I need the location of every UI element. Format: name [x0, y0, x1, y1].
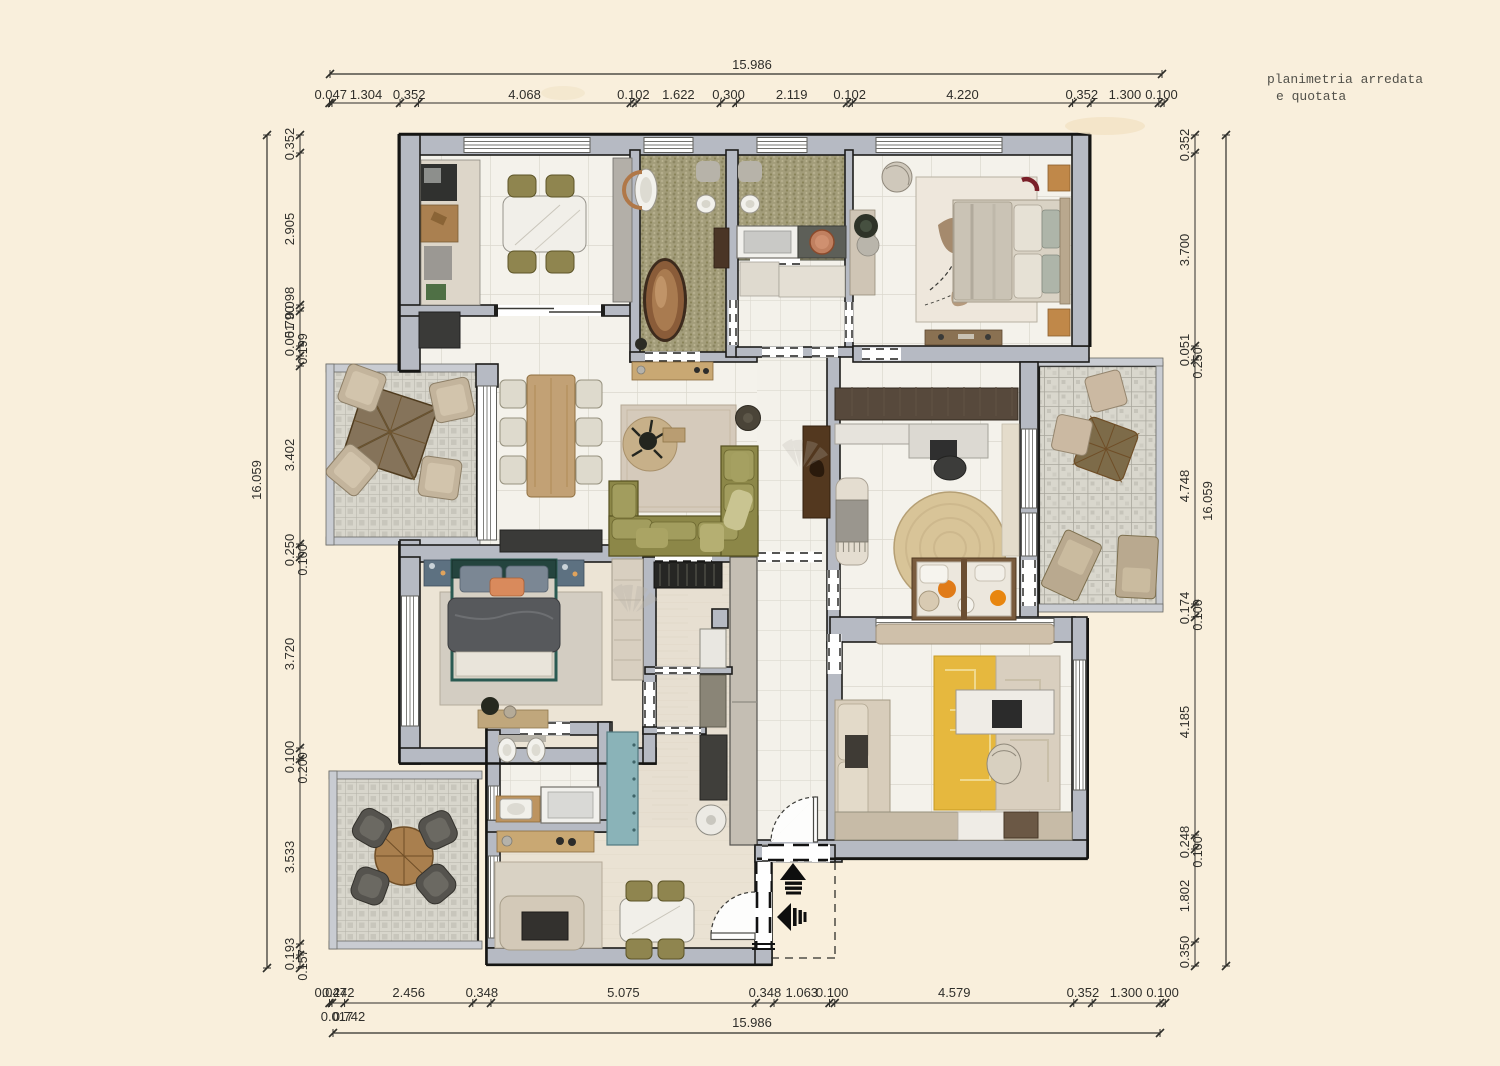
svg-text:0.157: 0.157	[296, 949, 310, 980]
svg-text:planimetria arredata: planimetria arredata	[1267, 72, 1423, 87]
svg-text:1.304: 1.304	[350, 87, 383, 102]
svg-text:0.352: 0.352	[1177, 129, 1192, 162]
svg-text:0.250: 0.250	[1191, 347, 1205, 378]
svg-text:0.102: 0.102	[617, 87, 650, 102]
svg-text:0.100: 0.100	[816, 985, 849, 1000]
svg-text:3.402: 3.402	[282, 439, 297, 472]
svg-text:5.075: 5.075	[607, 985, 640, 1000]
svg-text:1.300: 1.300	[1109, 87, 1142, 102]
svg-text:4.748: 4.748	[1177, 470, 1192, 503]
svg-text:0.100: 0.100	[1146, 985, 1179, 1000]
svg-text:3.720: 3.720	[282, 638, 297, 671]
svg-text:0.352: 0.352	[282, 128, 297, 161]
svg-text:2.905: 2.905	[282, 213, 297, 246]
svg-text:0.352: 0.352	[1066, 87, 1099, 102]
svg-text:16.059: 16.059	[1200, 481, 1215, 521]
svg-text:0.200: 0.200	[296, 752, 310, 783]
svg-text:4.220: 4.220	[946, 87, 979, 102]
svg-text:1.063: 1.063	[786, 985, 819, 1000]
svg-text:1.622: 1.622	[662, 87, 695, 102]
svg-text:0.742: 0.742	[333, 1009, 366, 1024]
svg-text:16.059: 16.059	[249, 460, 264, 500]
svg-text:2.119: 2.119	[776, 87, 808, 102]
svg-text:0.348: 0.348	[466, 985, 499, 1000]
svg-text:0.047: 0.047	[314, 87, 347, 102]
svg-text:0.199: 0.199	[296, 333, 310, 364]
svg-text:0.300: 0.300	[712, 87, 745, 102]
svg-text:0.352: 0.352	[1067, 985, 1100, 1000]
svg-text:0.100: 0.100	[1191, 836, 1205, 867]
svg-text:0.102: 0.102	[833, 87, 866, 102]
svg-text:0.193: 0.193	[282, 938, 297, 971]
svg-text:0.174: 0.174	[1177, 592, 1192, 625]
svg-text:3.533: 3.533	[282, 841, 297, 874]
svg-text:0.352: 0.352	[393, 87, 426, 102]
svg-text:0.100: 0.100	[296, 544, 310, 575]
svg-text:1.300: 1.300	[1110, 985, 1143, 1000]
svg-text:1.802: 1.802	[1177, 880, 1192, 913]
svg-text:0.100: 0.100	[1191, 599, 1205, 630]
svg-text:0.350: 0.350	[1177, 936, 1192, 969]
svg-text:0.051: 0.051	[1177, 334, 1192, 367]
svg-text:2.456: 2.456	[392, 985, 425, 1000]
svg-text:0.051: 0.051	[282, 324, 297, 357]
svg-text:0.248: 0.248	[1177, 826, 1192, 859]
svg-text:0.100: 0.100	[282, 741, 297, 774]
svg-text:15.986: 15.986	[732, 57, 772, 72]
svg-text:0.250: 0.250	[282, 534, 297, 567]
svg-text:15.986: 15.986	[732, 1015, 772, 1030]
svg-text:0.100: 0.100	[1145, 87, 1178, 102]
svg-text:0.242: 0.242	[322, 985, 355, 1000]
svg-text:0.348: 0.348	[749, 985, 782, 1000]
svg-text:e quotata: e quotata	[1276, 89, 1346, 104]
svg-text:3.700: 3.700	[1177, 234, 1192, 267]
svg-text:4.579: 4.579	[938, 985, 971, 1000]
svg-text:4.185: 4.185	[1177, 706, 1192, 739]
svg-text:4.068: 4.068	[508, 87, 541, 102]
